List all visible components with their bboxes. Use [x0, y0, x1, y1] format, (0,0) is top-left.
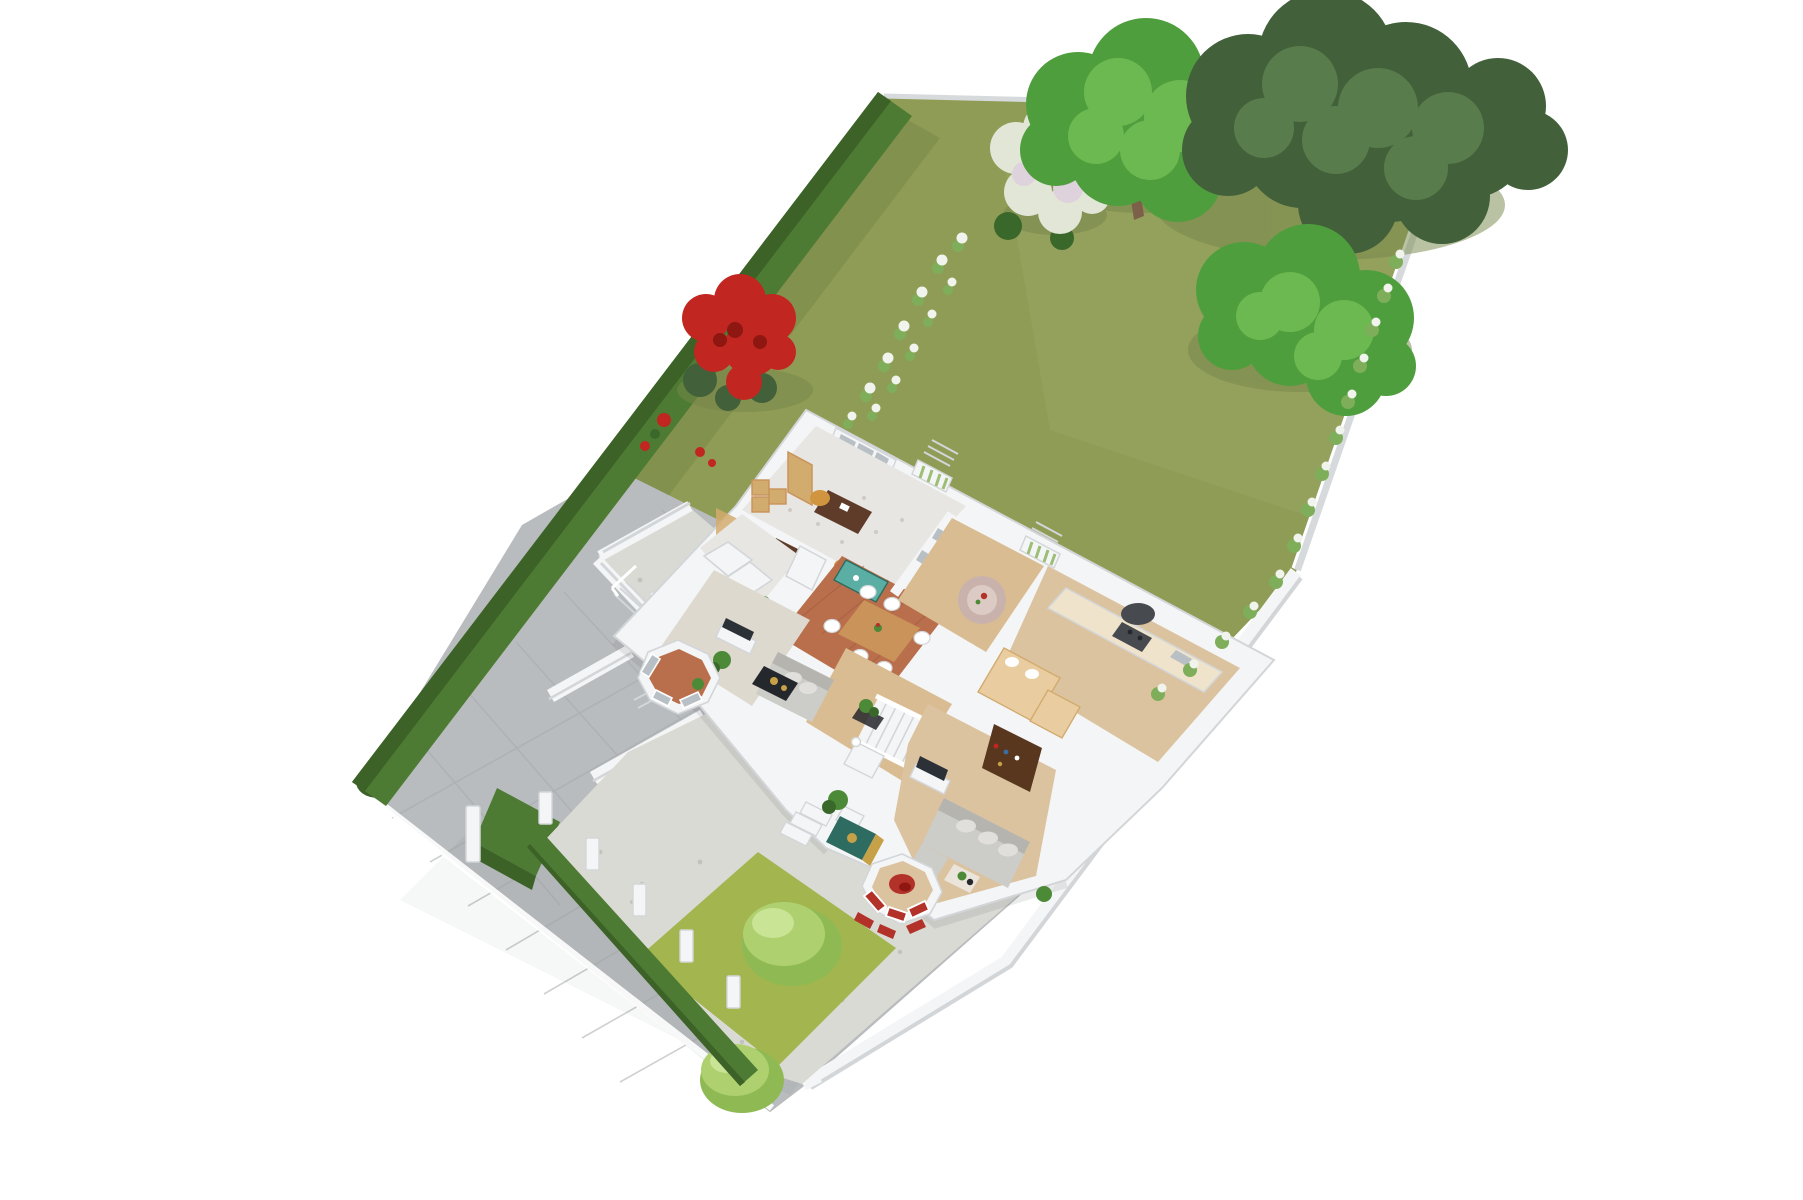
gold-bowl	[770, 677, 778, 685]
burner	[1128, 630, 1133, 635]
isometric-scene	[0, 0, 1803, 1200]
burner-2	[1138, 636, 1143, 641]
red-armchair-seat	[899, 883, 911, 892]
centerpiece-flower	[876, 623, 880, 627]
porch-gold-medallion	[847, 833, 857, 843]
floorplan-render	[0, 0, 1803, 1200]
cooker-hood	[1121, 603, 1155, 625]
newel-post	[852, 738, 861, 747]
boxwood-post	[466, 806, 480, 862]
rug-flowers	[981, 593, 987, 599]
sideboard-decor	[853, 575, 859, 581]
round-rug-inner	[967, 585, 997, 615]
rug-vase	[976, 600, 981, 605]
bay1-plant	[692, 678, 704, 690]
gold-bowl-2	[781, 685, 787, 691]
